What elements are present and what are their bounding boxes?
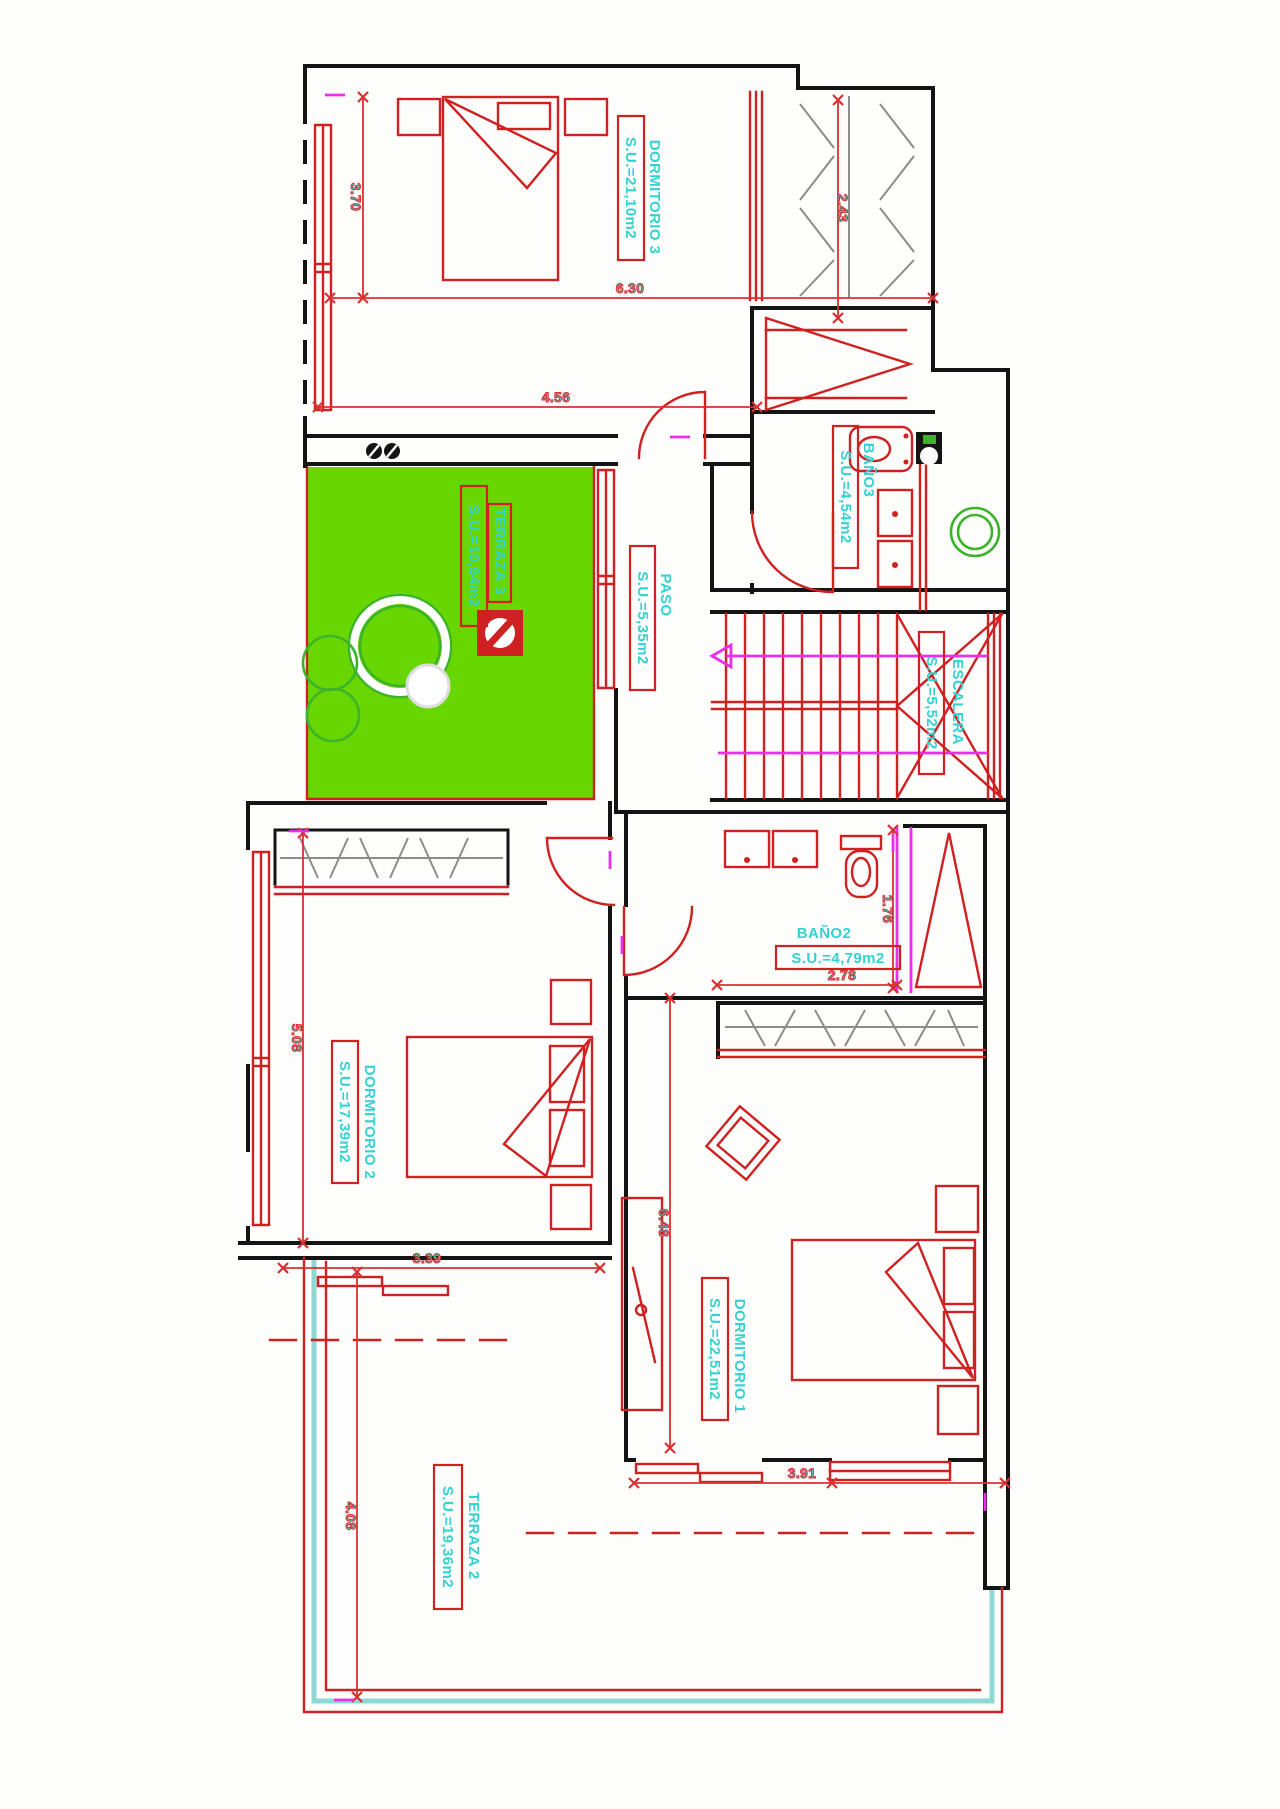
bano3-name-label: BAÑO3 [860,443,878,498]
nightstand-icon [551,1185,591,1229]
sink-icon [773,831,817,867]
closet-dormitorio2-icon [275,830,508,894]
room-terraza-3: S.U.=10,94m2 TERRAZA 3 [303,466,594,799]
room-dormitorio-3: S.U.=21,10m2 DORMITORIO 3 [315,92,914,458]
room-dormitorio-2: S.U.=17,39m2 DORMITORIO 2 [253,838,614,1295]
bed-icon [407,980,592,1229]
shower-icon [897,827,981,993]
window [253,852,269,1225]
dormitorio2-area-label: S.U.=17,39m2 [336,1061,353,1163]
nightstand-icon [936,1186,978,1232]
dimension-label: 1.76 [880,895,896,923]
washing-machine-icon [958,515,992,549]
terrace-chair-icon [407,665,449,707]
sink-icon [878,490,912,536]
dimension-label: 2.43 [835,194,851,222]
armchair-icon [706,1106,779,1179]
bed-icon [398,97,607,280]
paso-area-label: S.U.=5,35m2 [634,571,651,664]
terrace2-inner-border [326,1262,980,1690]
dimension-label: 4.56 [542,389,570,405]
nightstand-icon [551,980,591,1024]
floorplan-drawing: S.U.=10,94m2 TERRAZA 3 [0,0,1280,1809]
escalera-area-label: S.U.=5,52m2 [923,656,940,749]
terraza3-area-label: S.U.=10,94m2 [465,505,482,607]
dormitorio3-area-label: S.U.=21,10m2 [622,137,639,239]
dimension-label: 2.78 [828,967,856,983]
dormitorio1-area-label: S.U.=22,51m2 [706,1298,723,1400]
door-arc [752,512,833,592]
paso-name-label: PASO [657,574,674,617]
closet-dormitorio1-icon [718,1010,985,1057]
nightstand-icon [565,99,607,135]
bano3-area-label: S.U.=4,54m2 [837,450,854,543]
dimension-label: 6.30 [616,280,644,296]
sink-icon [725,831,769,867]
door-arc [624,907,692,975]
drain-symbol-icon [477,610,523,656]
shaft-symbol-icon [916,432,942,465]
dimension-label: 6.48 [656,1209,672,1237]
dimension-label: 3.70 [348,183,364,211]
dimension-ticks [278,92,1010,1702]
dimension-label: 3.39 [413,1250,441,1266]
bed-icon [792,1186,978,1434]
dormitorio1-name-label: DORMITORIO 1 [731,1299,748,1414]
window [598,470,614,688]
escalera-name-label: ESCALERA [949,659,966,745]
toilet-icon [850,427,912,471]
terraza3-name-label: TERRAZA 3 [491,507,508,594]
bano2-name-label: BAÑO2 [797,924,852,942]
wall-hinge-symbol-icon [366,443,400,459]
window [315,125,331,410]
wardrobe-icon [750,92,914,300]
room-bano-2: BAÑO2 S.U.=4,79m2 [624,827,981,993]
room-dormitorio-1: S.U.=22,51m2 DORMITORIO 1 [622,1106,978,1482]
dimension-label: 3.91 [788,1465,816,1481]
closet-icon [766,318,910,410]
terrace2-outer-border [304,1258,1002,1712]
dimensions: 3.70 6.30 2.43 4.56 5.08 3.39 1.76 2.78 … [278,92,1010,1702]
dormitorio3-name-label: DORMITORIO 3 [646,140,663,255]
room-bano-3: S.U.=4,54m2 BAÑO3 [752,426,999,610]
dimension-label: 5.08 [289,1024,305,1052]
terraza2-name-label: TERRAZA 2 [465,1492,482,1579]
dimension-label: 4.08 [343,1502,359,1530]
door-arc [547,838,614,905]
nightstand-icon [938,1386,978,1434]
room-paso: S.U.=5,35m2 PASO [598,470,674,690]
bano2-area-label: S.U.=4,79m2 [791,950,884,967]
sink-icon [878,541,912,587]
nightstand-icon [398,99,440,135]
sliding-window [318,1277,448,1295]
toilet-icon [841,836,881,897]
terraza2-area-label: S.U.=19,36m2 [439,1486,456,1588]
dormitorio2-name-label: DORMITORIO 2 [361,1065,378,1180]
door-arc [639,392,705,458]
floorplan-page: S.U.=10,94m2 TERRAZA 3 [0,0,1280,1809]
stairs: S.U.=5,52m2 ESCALERA [712,614,1002,798]
